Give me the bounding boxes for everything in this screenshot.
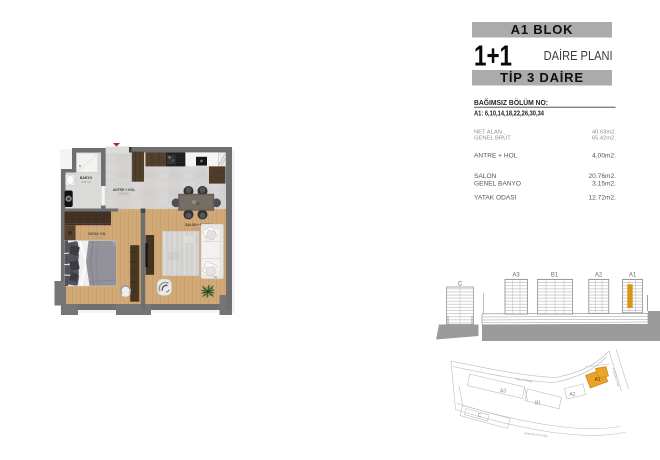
svg-text:65.42m2.: 65.42m2. <box>592 135 617 141</box>
svg-text:20.76m2.: 20.76m2. <box>589 173 617 180</box>
svg-text:YATAK OD.: YATAK OD. <box>88 232 106 236</box>
svg-text:A2: A2 <box>569 392 575 398</box>
svg-text:DAİRE PLANI: DAİRE PLANI <box>544 49 613 63</box>
svg-text:A2: A2 <box>595 273 603 279</box>
svg-text:3.15m2.: 3.15m2. <box>592 180 616 187</box>
svg-text:ANTRE + HOL: ANTRE + HOL <box>113 188 136 192</box>
svg-text:Hasbahçe Sokağı: Hasbahçe Sokağı <box>524 431 548 438</box>
svg-text:Gezi Sokağı: Gezi Sokağı <box>516 377 533 383</box>
svg-text:Kuşbakışı Cad.: Kuşbakışı Cad. <box>611 367 621 388</box>
svg-text:A1: 6,10,14,18,22,26,30,34: A1: 6,10,14,18,22,26,30,34 <box>474 109 545 118</box>
svg-text:BAĞIMSIZ BÖLÜM NO:: BAĞIMSIZ BÖLÜM NO: <box>474 98 548 107</box>
svg-text:TİP 3 DAİRE: TİP 3 DAİRE <box>500 70 584 85</box>
svg-text:4,00m2.: 4,00m2. <box>592 152 616 159</box>
svg-text:GENEL BANYO: GENEL BANYO <box>474 180 521 187</box>
svg-text:A3: A3 <box>500 389 506 395</box>
svg-text:SALON: SALON <box>474 173 497 180</box>
svg-text:ANTRE + HOL: ANTRE + HOL <box>474 152 518 159</box>
svg-text:4.00 m2: 4.00 m2 <box>119 192 129 196</box>
svg-text:B1: B1 <box>551 273 559 279</box>
svg-text:3.15 m2: 3.15 m2 <box>81 180 91 184</box>
svg-text:A3: A3 <box>512 273 520 279</box>
svg-text:C: C <box>478 413 482 419</box>
svg-text:YATAK ODASI: YATAK ODASI <box>474 194 517 201</box>
svg-text:GENEL BRÜT: GENEL BRÜT <box>474 134 511 141</box>
svg-text:A1: A1 <box>629 273 637 279</box>
svg-text:12.72m2.: 12.72m2. <box>589 194 617 201</box>
svg-text:A1 BLOK: A1 BLOK <box>511 22 574 37</box>
svg-text:A1: A1 <box>594 377 600 383</box>
svg-text:1+1: 1+1 <box>474 41 512 73</box>
svg-text:B1: B1 <box>535 401 541 407</box>
svg-text:C: C <box>458 282 463 288</box>
svg-text:BANYO: BANYO <box>80 176 93 180</box>
svg-text:12.72 m2: 12.72 m2 <box>91 236 103 240</box>
